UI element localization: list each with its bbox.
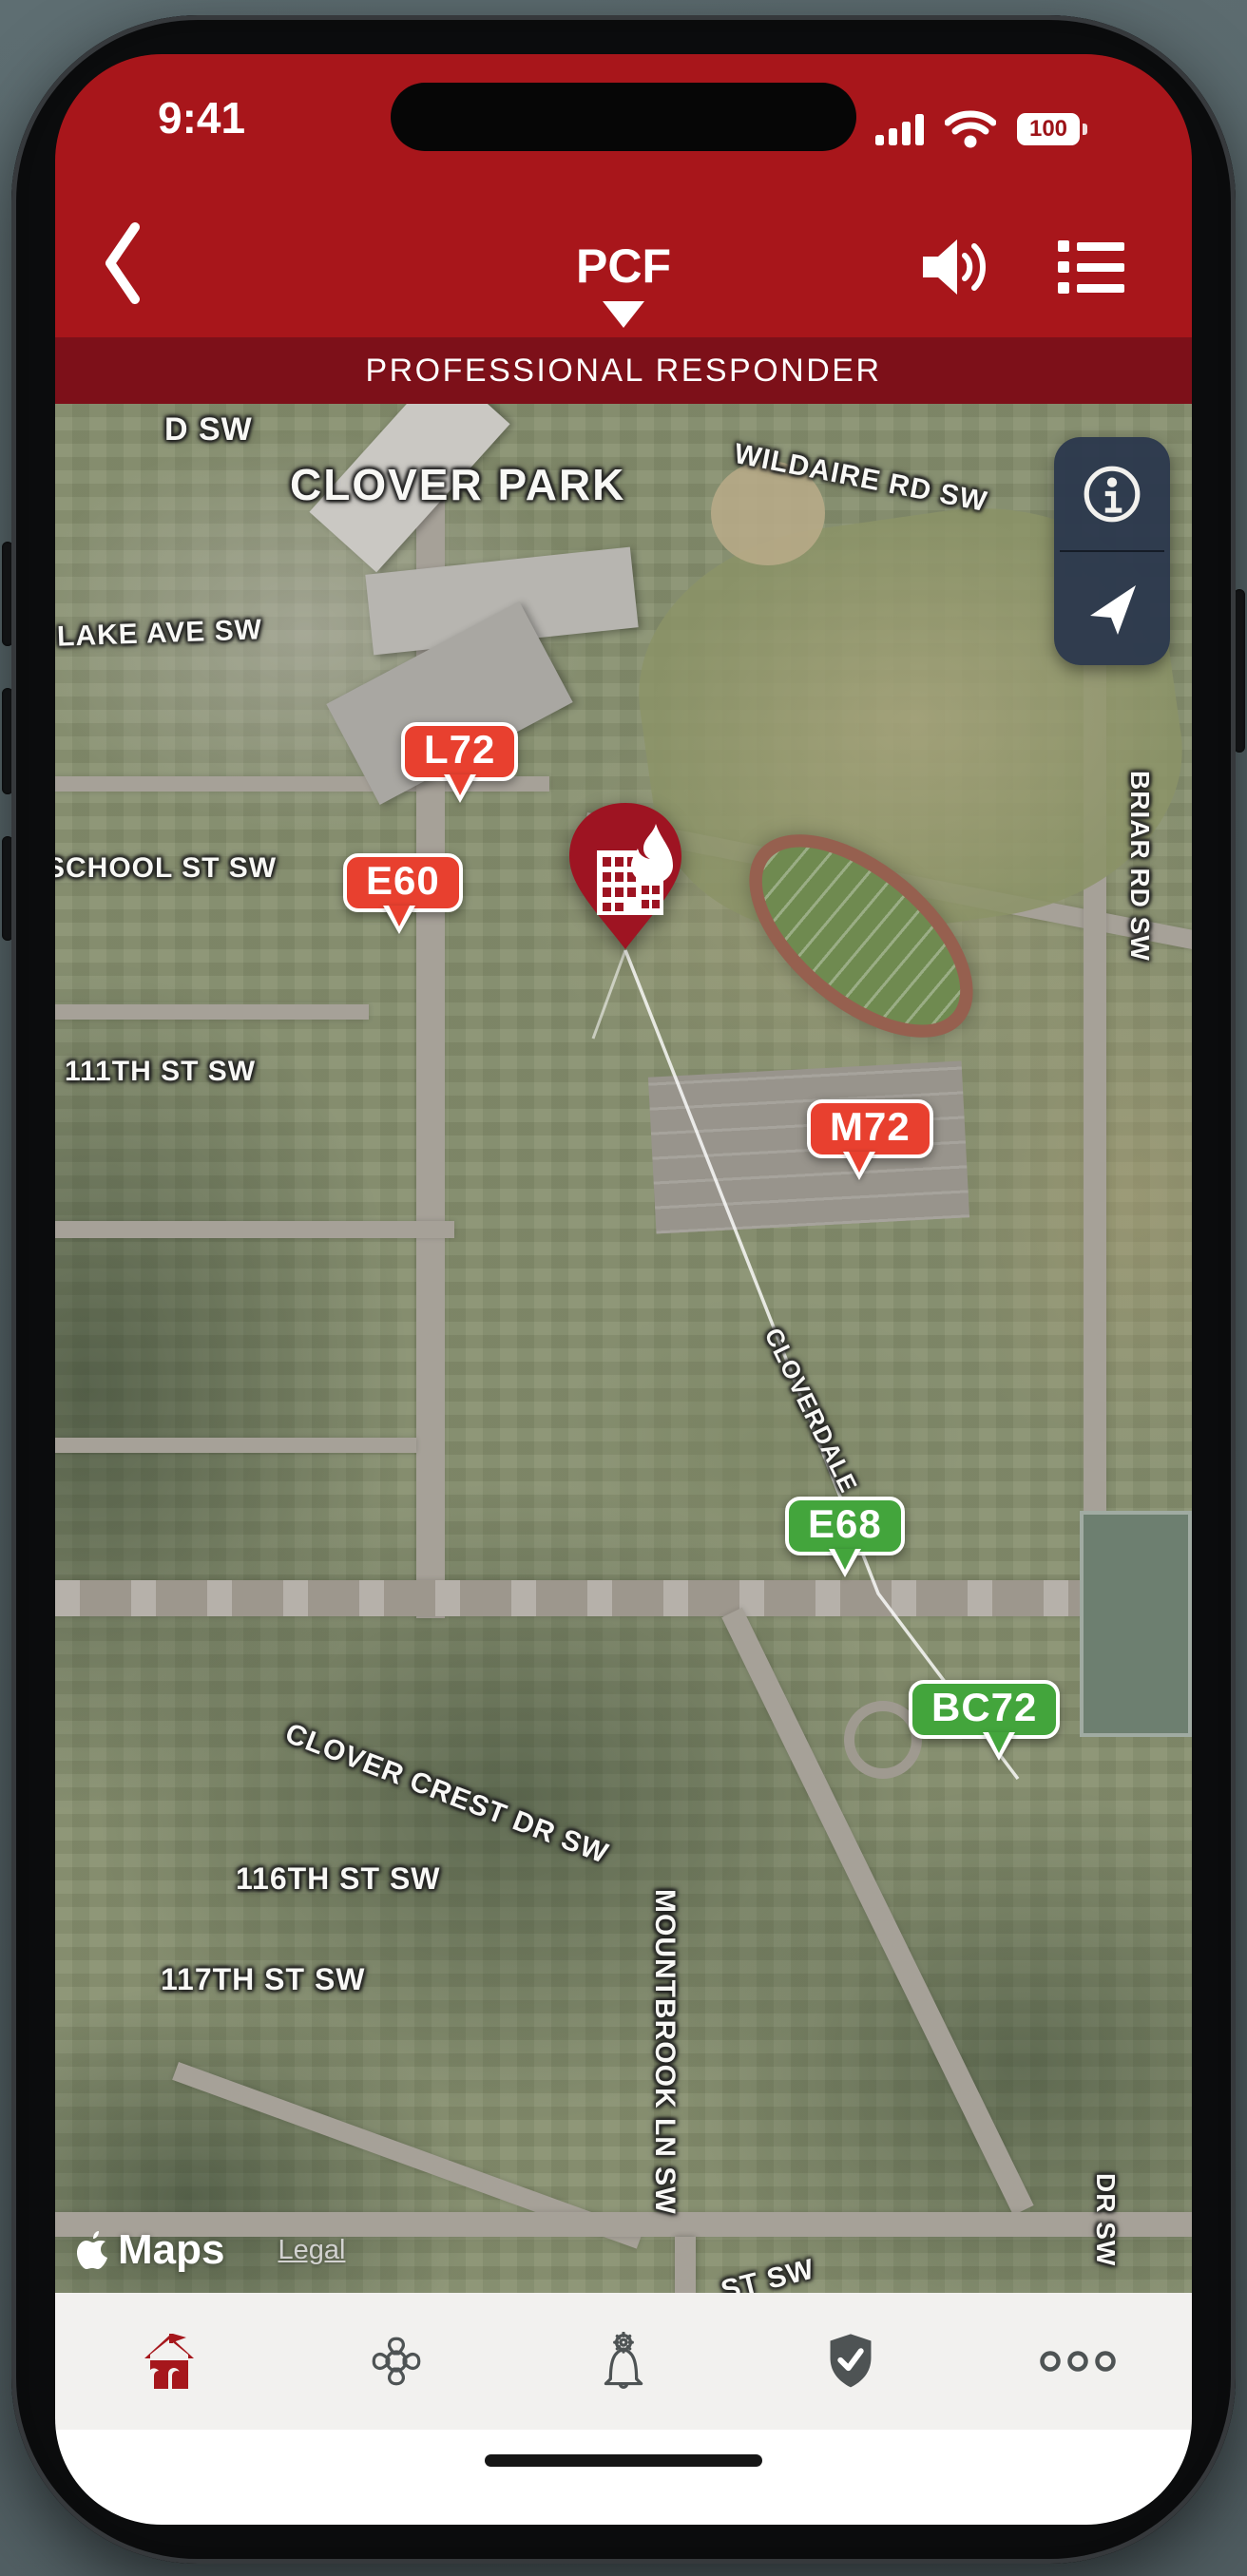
title-dropdown[interactable]: PCF (55, 206, 1192, 328)
caret-down-icon (603, 301, 644, 328)
responder-banner-label: PROFESSIONAL RESPONDER (365, 353, 881, 390)
locate-button[interactable] (1054, 552, 1170, 665)
bottom-safe-area (55, 2430, 1192, 2525)
speaker-volume-icon (919, 236, 993, 298)
street-label-d-sw: D SW (164, 411, 253, 448)
app-header: 9:41 100 (55, 54, 1192, 337)
unit-label: L72 (424, 727, 495, 772)
home-indicator[interactable] (485, 2454, 762, 2467)
maps-logo-text: Maps (118, 2226, 224, 2274)
map-controls-panel (1054, 437, 1170, 665)
app-screen: 9:41 100 (55, 54, 1192, 2525)
desktop-background: 9:41 100 (0, 0, 1247, 2576)
battery-icon: 100 (1017, 113, 1080, 145)
maps-logo: Maps (76, 2226, 224, 2274)
navigation-arrow-icon (1083, 580, 1141, 639)
legal-link[interactable]: Legal (278, 2235, 345, 2266)
street-label-dr-sw: DR SW (1090, 2173, 1121, 2261)
responder-banner: PROFESSIONAL RESPONDER (55, 337, 1192, 404)
tab-bar (55, 2293, 1192, 2430)
unit-label: E60 (366, 858, 440, 903)
tab-shield[interactable] (738, 2293, 965, 2430)
tab-department[interactable] (282, 2293, 509, 2430)
street-label-117th: 117TH ST SW (161, 1962, 366, 1997)
route-lines (55, 404, 1192, 2293)
maltese-cross-icon (368, 2333, 425, 2390)
satellite-map[interactable]: D SW CLOVER PARK WILDAIRE RD SW LAKE AVE… (55, 404, 1192, 2293)
tab-station[interactable] (55, 2293, 282, 2430)
menu-button[interactable] (1051, 227, 1131, 307)
unit-marker-m72[interactable]: M72 (807, 1099, 933, 1158)
nav-bar: PCF (55, 206, 1192, 337)
phone-frame: 9:41 100 (11, 15, 1236, 2564)
unit-label: BC72 (931, 1685, 1037, 1729)
unit-marker-e60[interactable]: E60 (343, 853, 463, 912)
unit-marker-e68[interactable]: E68 (785, 1497, 905, 1555)
unit-label: E68 (808, 1501, 882, 1546)
place-label-clover-park: CLOVER PARK (290, 459, 625, 510)
wifi-icon (945, 109, 996, 149)
map-attribution: Maps Legal (76, 2226, 345, 2274)
info-circle-icon (1081, 463, 1143, 525)
shield-check-icon (823, 2332, 878, 2391)
status-icons: 100 (875, 109, 1080, 149)
street-label-mountbrook: MOUNTBROOK LN SW (648, 1889, 681, 2174)
dynamic-island (391, 83, 856, 151)
list-menu-icon (1058, 237, 1124, 297)
battery-percent: 100 (1029, 116, 1067, 143)
info-button[interactable] (1054, 437, 1170, 550)
tab-alerts[interactable] (509, 2293, 737, 2430)
battery-nub (1083, 124, 1087, 135)
apple-logo-icon (76, 2230, 110, 2270)
fire-station-icon (141, 2334, 198, 2389)
page-title: PCF (55, 239, 1192, 294)
unit-label: M72 (830, 1104, 911, 1149)
unit-marker-bc72[interactable]: BC72 (909, 1680, 1060, 1739)
ellipsis-icon (1038, 2349, 1118, 2374)
speaker-button[interactable] (916, 227, 996, 307)
status-time: 9:41 (158, 92, 310, 143)
street-label-111th: 111TH ST SW (65, 1056, 256, 1088)
tab-more[interactable] (965, 2293, 1192, 2430)
street-label-school-st: SCHOOL ST SW (55, 852, 277, 885)
bell-gear-icon (595, 2332, 652, 2391)
street-label-briar: BRIAR RD SW (1124, 771, 1155, 961)
street-label-116th: 116TH ST SW (236, 1861, 441, 1897)
cellular-signal-icon (875, 113, 924, 145)
unit-marker-l72[interactable]: L72 (401, 722, 518, 781)
building-fire-pin-icon (565, 801, 686, 951)
incident-pin[interactable] (565, 801, 686, 951)
